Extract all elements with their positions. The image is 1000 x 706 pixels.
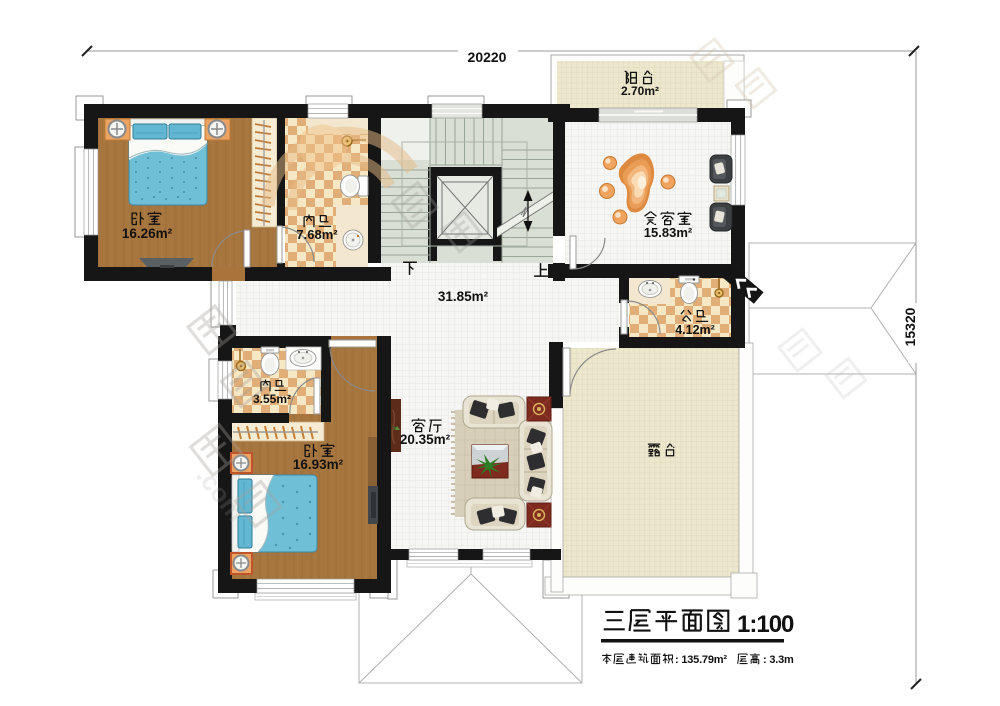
svg-text:20.35m²: 20.35m² — [400, 432, 451, 447]
svg-text:: 135.79m²: : 135.79m² — [675, 654, 727, 666]
svg-text:20220: 20220 — [468, 49, 507, 65]
svg-text:: 3.3m: : 3.3m — [763, 654, 794, 666]
svg-text:31.85m²: 31.85m² — [438, 289, 489, 304]
svg-text:16.93m²: 16.93m² — [293, 457, 344, 472]
svg-text:15320: 15320 — [902, 307, 918, 346]
svg-text:2.70m²: 2.70m² — [621, 84, 659, 98]
svg-text:15.83m²: 15.83m² — [644, 225, 693, 240]
svg-text:1:100: 1:100 — [737, 611, 794, 638]
svg-text:7.68m²: 7.68m² — [296, 227, 338, 242]
svg-text:4.12m²: 4.12m² — [675, 323, 715, 337]
svg-text:16.26m²: 16.26m² — [122, 226, 173, 241]
